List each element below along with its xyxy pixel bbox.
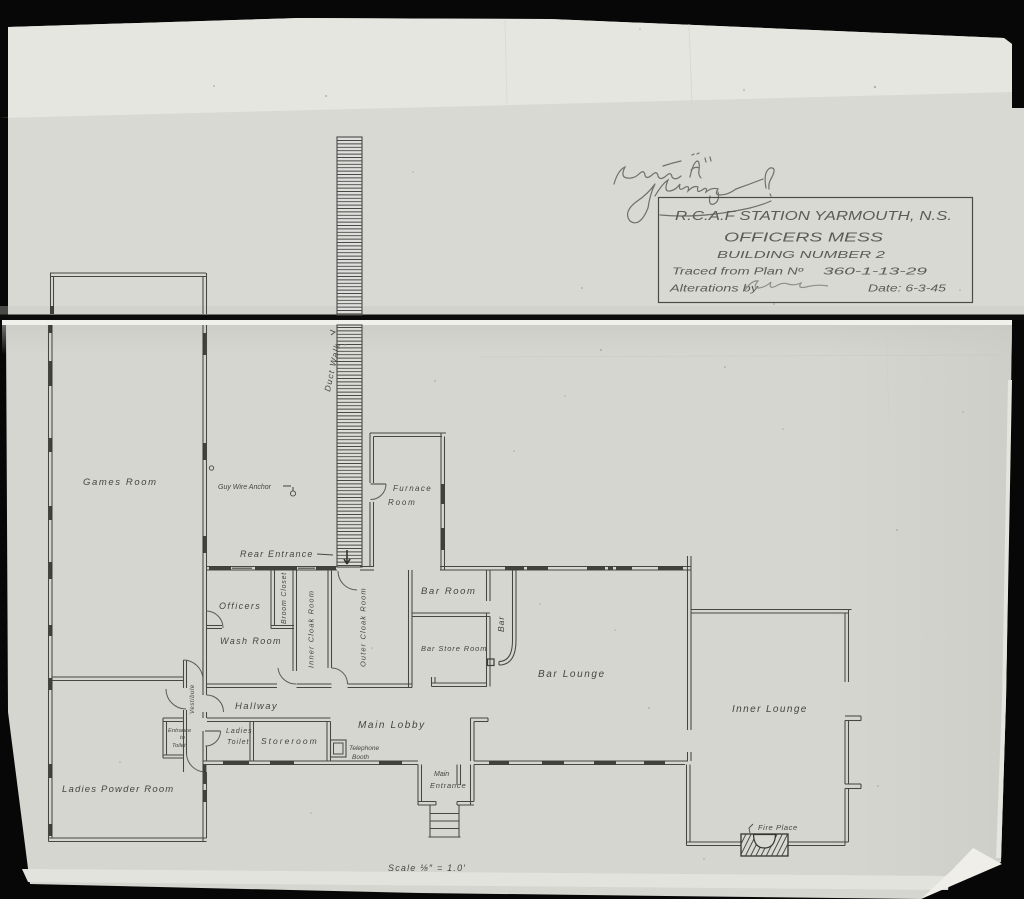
svg-text:360-1-13-29: 360-1-13-29 bbox=[823, 267, 928, 278]
svg-text:Entrance: Entrance bbox=[430, 781, 466, 790]
svg-text:to: to bbox=[180, 735, 186, 741]
svg-text:Date: 6-3-45: Date: 6-3-45 bbox=[868, 284, 947, 295]
svg-text:Toilet: Toilet bbox=[172, 743, 186, 749]
svg-text:Fire Place: Fire Place bbox=[758, 823, 798, 832]
svg-text:Room: Room bbox=[388, 498, 417, 507]
svg-text:Entrance: Entrance bbox=[168, 728, 192, 734]
svg-text:Inner Cloak Room: Inner Cloak Room bbox=[307, 590, 316, 668]
svg-text:Scale ⅛″ = 1.0′: Scale ⅛″ = 1.0′ bbox=[388, 863, 466, 873]
svg-text:Games Room: Games Room bbox=[83, 477, 158, 488]
svg-text:Bar Store Room: Bar Store Room bbox=[421, 644, 487, 653]
svg-text:Main Lobby: Main Lobby bbox=[358, 720, 426, 731]
svg-text:Hallway: Hallway bbox=[235, 701, 278, 712]
svg-text:Toilet: Toilet bbox=[227, 739, 250, 746]
svg-text:Inner Lounge: Inner Lounge bbox=[732, 704, 808, 715]
svg-text:Storeroom: Storeroom bbox=[261, 736, 319, 746]
svg-text:Traced from Plan Nº: Traced from Plan Nº bbox=[672, 267, 805, 278]
svg-text:Telephone: Telephone bbox=[349, 745, 380, 752]
svg-text:R.C.A.F STATION YARMOUTH, N: R.C.A.F STATION YARMOUTH, N.S. bbox=[675, 208, 952, 223]
svg-text:Bar: Bar bbox=[496, 616, 506, 632]
svg-text:Outer Cloak Room: Outer Cloak Room bbox=[359, 587, 368, 667]
svg-text:Main: Main bbox=[434, 771, 449, 778]
svg-text:Furnace: Furnace bbox=[393, 484, 432, 493]
svg-text:Officers: Officers bbox=[219, 601, 261, 611]
svg-text:Bar Lounge: Bar Lounge bbox=[538, 669, 606, 680]
svg-text:Wash Room: Wash Room bbox=[220, 636, 282, 646]
svg-text:OFFICERS MESS: OFFICERS MESS bbox=[724, 230, 883, 245]
svg-text:Broom Closet: Broom Closet bbox=[281, 572, 288, 624]
svg-text:Ladies: Ladies bbox=[226, 728, 253, 735]
svg-text:Ladies Powder Room: Ladies Powder Room bbox=[62, 784, 174, 795]
svg-text:Booth: Booth bbox=[352, 754, 369, 761]
svg-text:Vestibule: Vestibule bbox=[190, 684, 196, 714]
svg-text:Rear Entrance: Rear Entrance bbox=[240, 549, 314, 559]
svg-text:Guy Wire Anchor: Guy Wire Anchor bbox=[218, 484, 272, 491]
svg-text:Bar Room: Bar Room bbox=[421, 586, 477, 597]
svg-text:BUILDING NUMBER 2: BUILDING NUMBER 2 bbox=[717, 249, 885, 261]
